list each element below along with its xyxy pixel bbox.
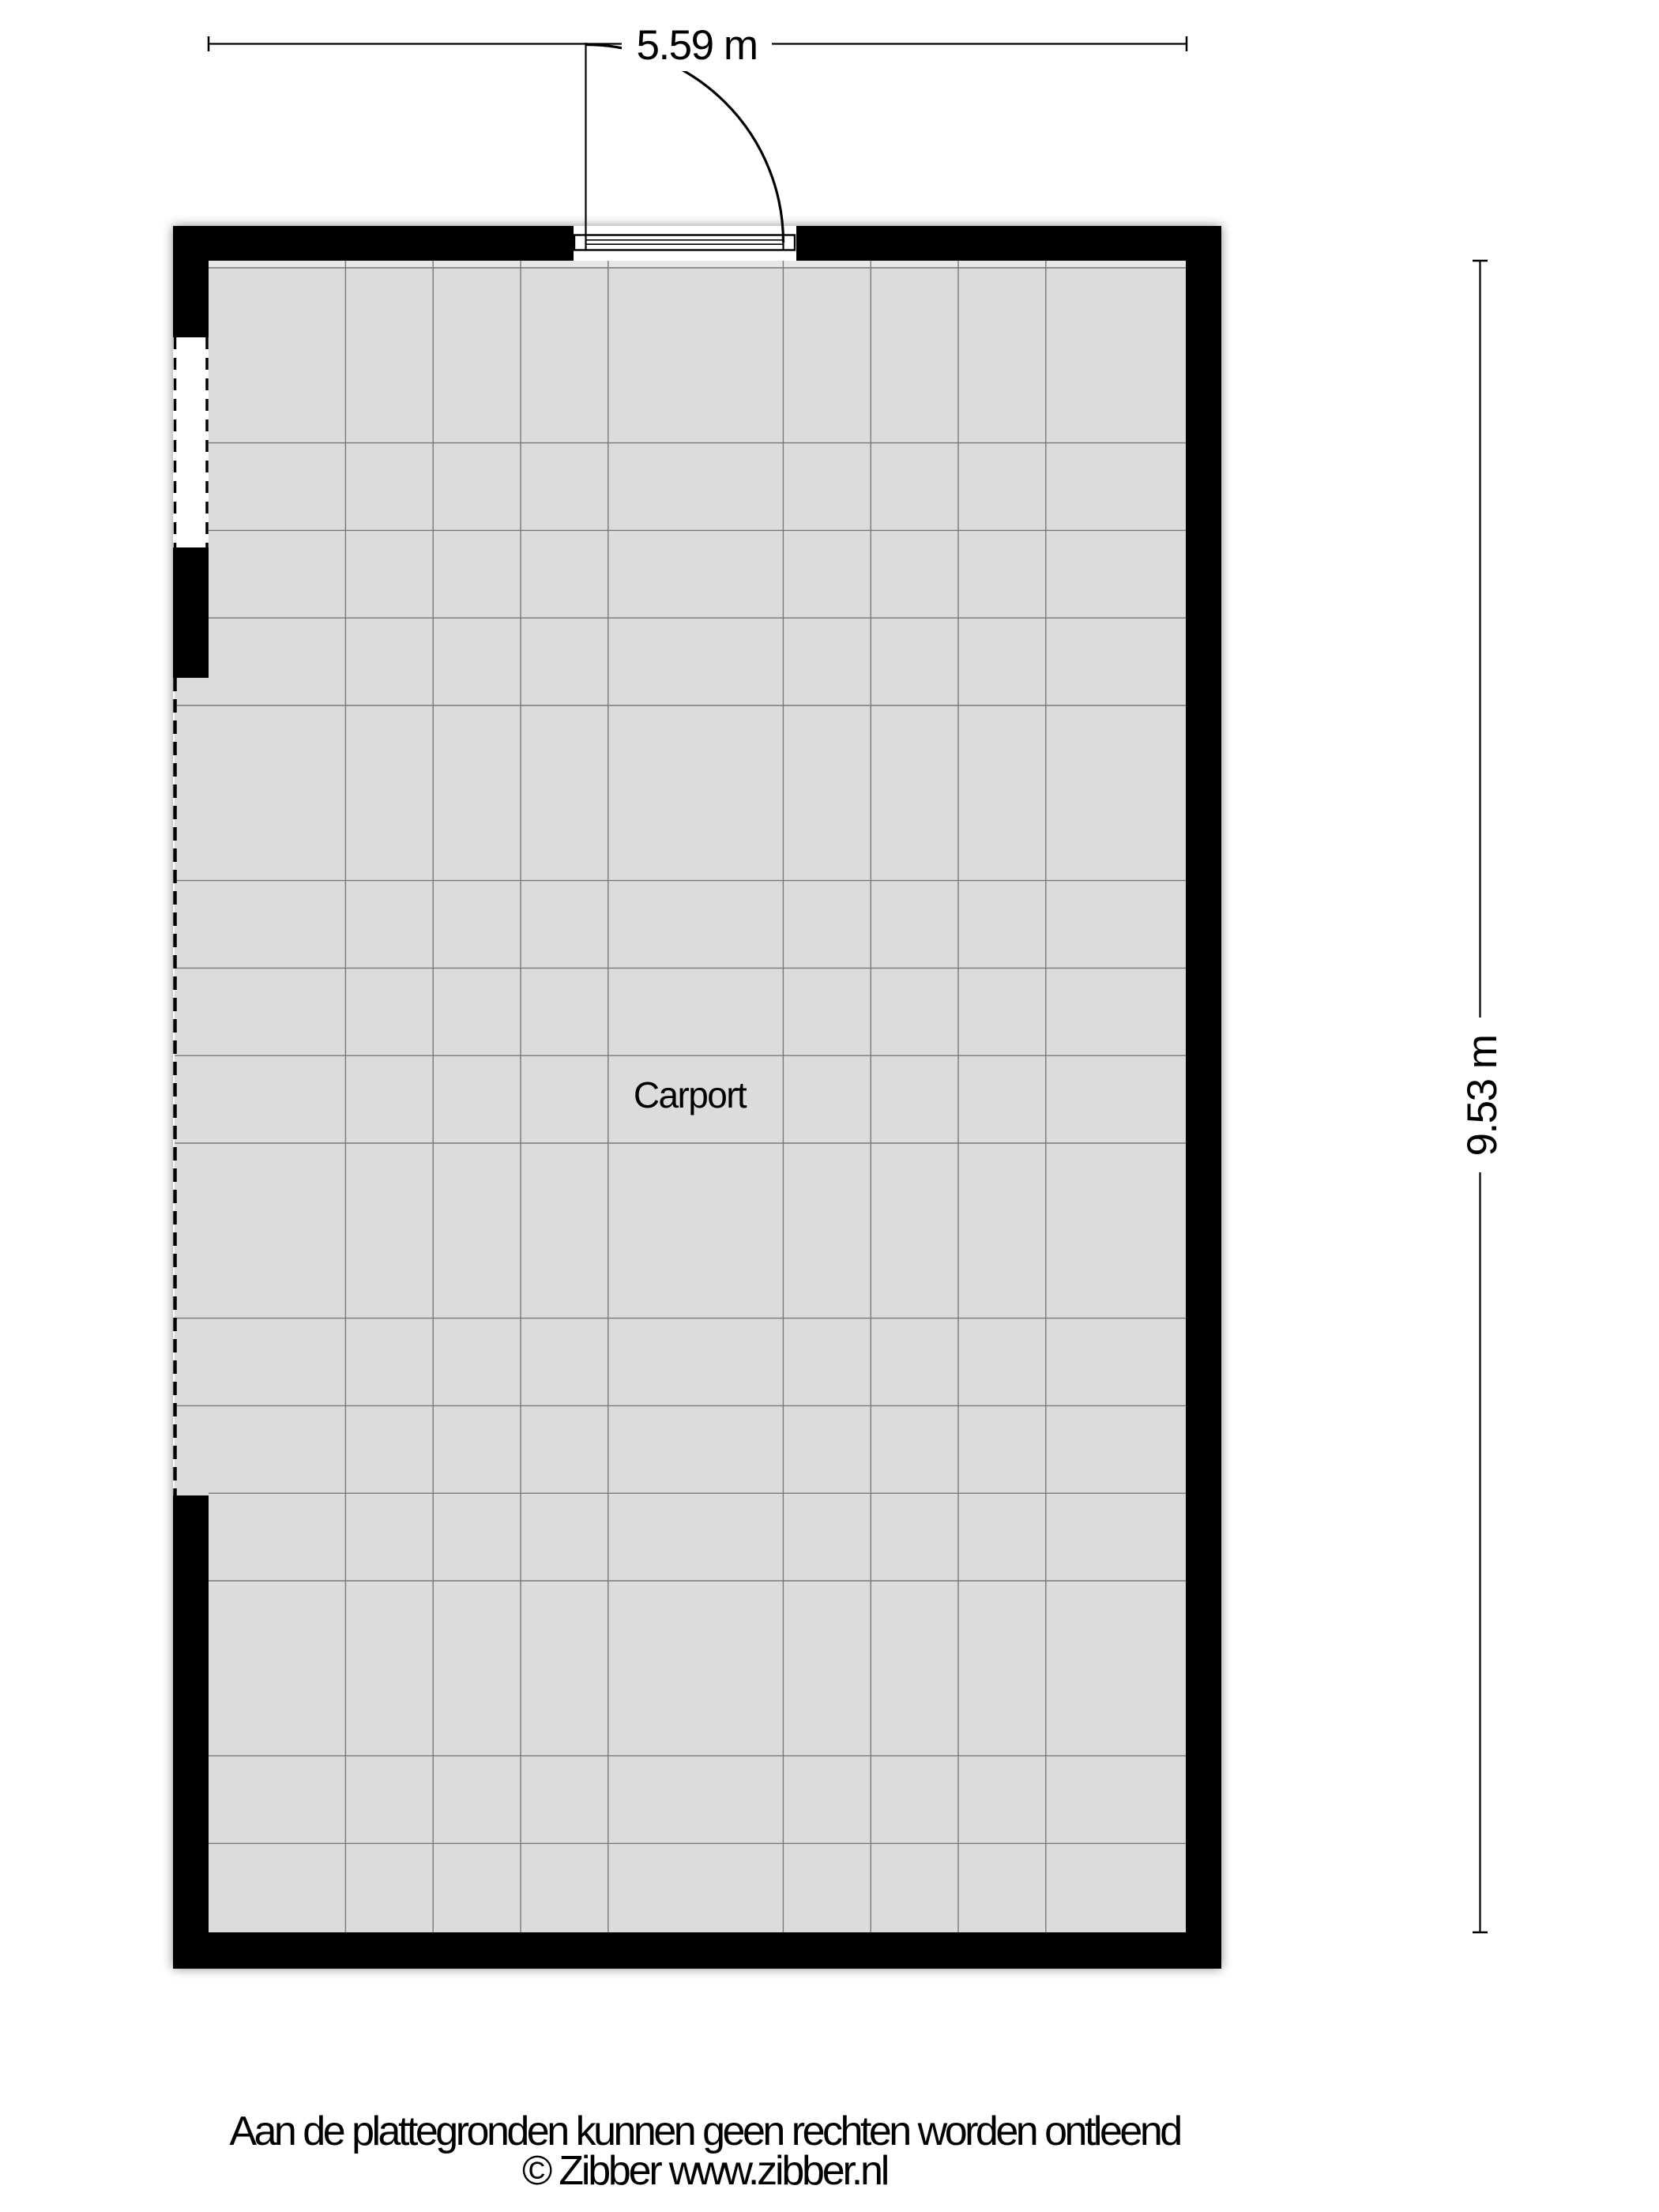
svg-text:© Zibber www.zibber.nl: © Zibber www.zibber.nl <box>522 2148 888 2194</box>
svg-text:Carport: Carport <box>634 1074 747 1115</box>
svg-text:5.59 m: 5.59 m <box>636 22 757 69</box>
svg-text:9.53 m: 9.53 m <box>1459 1035 1506 1156</box>
